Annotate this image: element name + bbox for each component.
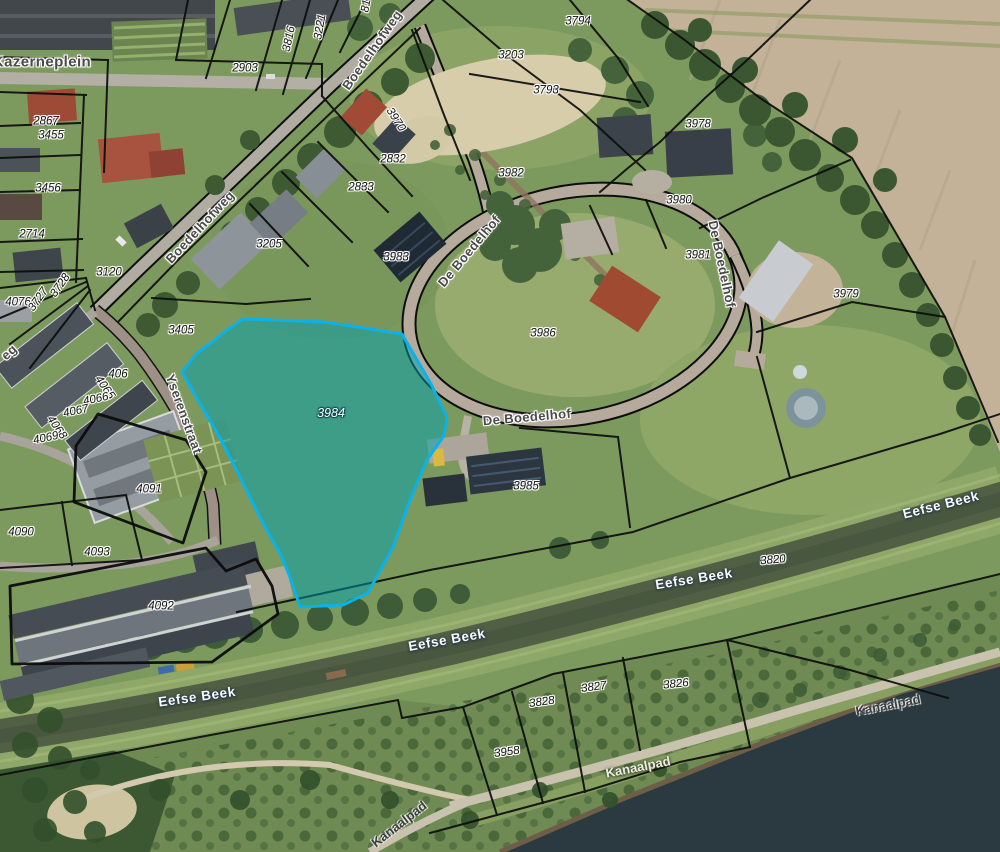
aerial-cadastral-map[interactable]: Cadastral aerial map with highlighted pa… xyxy=(0,0,1000,852)
aerial-imagery: Cadastral aerial map with highlighted pa… xyxy=(0,0,1000,852)
